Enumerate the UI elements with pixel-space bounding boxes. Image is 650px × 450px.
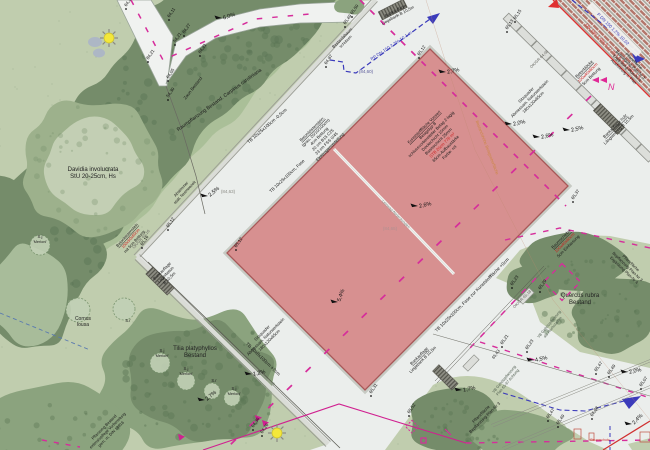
svg-text:(84,60): (84,60) [359, 69, 374, 74]
svg-text:'Merloni': 'Merloni' [179, 372, 193, 376]
svg-text:(84,65): (84,65) [383, 226, 398, 231]
svg-text:Baumschutz: Baumschutz [590, 438, 610, 442]
svg-text:S.r: S.r [211, 378, 217, 383]
svg-text:S.j: S.j [160, 348, 165, 353]
svg-text:StU 20-25cm, Hs: StU 20-25cm, Hs [70, 174, 116, 180]
svg-text:'Merloni': 'Merloni' [227, 392, 241, 396]
svg-text:Davidia involucrata: Davidia involucrata [68, 167, 119, 173]
svg-text:(84,63): (84,63) [221, 189, 236, 194]
svg-text:'Merloni': 'Merloni' [155, 354, 169, 358]
svg-text:Bestand: Bestand [569, 300, 591, 306]
svg-text:N: N [608, 82, 615, 92]
svg-text:S.j: S.j [232, 386, 237, 391]
svg-text:Tilia platyphyllos: Tilia platyphyllos [173, 346, 217, 352]
svg-text:'Merloni': 'Merloni' [33, 240, 47, 244]
svg-text:Bestand: Bestand [184, 353, 206, 359]
svg-text:S.j: S.j [38, 234, 43, 239]
svg-text:S.r: S.r [125, 318, 131, 323]
svg-text:S.j: S.j [184, 366, 189, 371]
svg-text:lousa: lousa [77, 322, 89, 328]
svg-text:Quercus rubra: Quercus rubra [561, 293, 600, 299]
